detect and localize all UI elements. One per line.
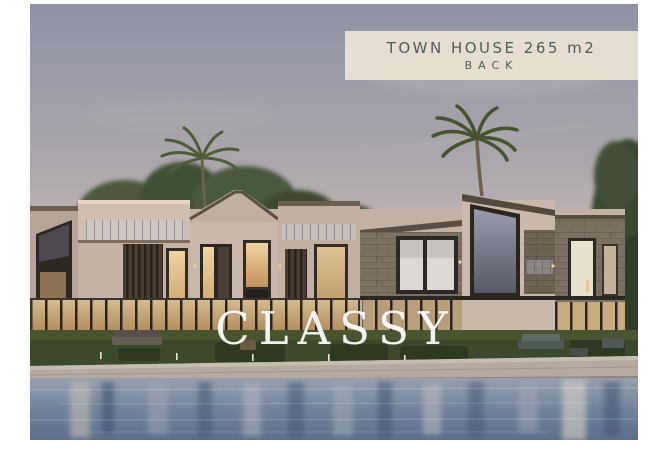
real-estate-photo: TOWN HOUSE 265 m2 BACK CLASSY bbox=[30, 4, 638, 440]
brand-watermark: CLASSY bbox=[215, 302, 456, 355]
listing-label-subtitle: BACK bbox=[465, 59, 519, 72]
listing-label: TOWN HOUSE 265 m2 BACK bbox=[345, 31, 638, 80]
listing-label-title: TOWN HOUSE 265 m2 bbox=[387, 39, 597, 57]
water bbox=[30, 378, 638, 440]
